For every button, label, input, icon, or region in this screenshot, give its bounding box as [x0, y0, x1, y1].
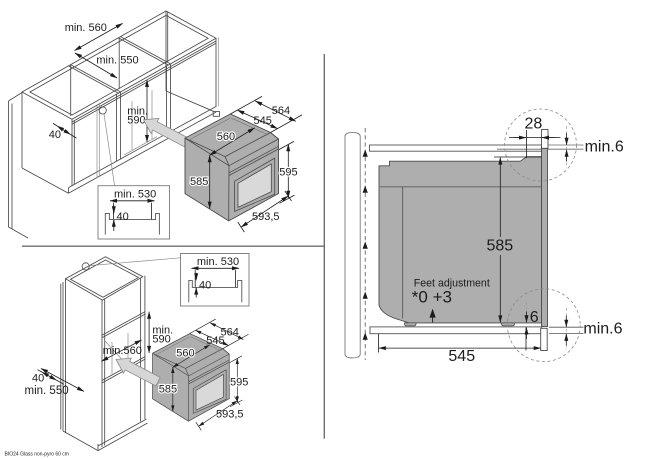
svg-text:min.6: min.6	[585, 138, 624, 155]
svg-text:560: 560	[217, 131, 235, 143]
svg-text:593,5: 593,5	[216, 408, 244, 420]
svg-text:min. 550: min. 550	[96, 54, 138, 66]
svg-text:*0 +3: *0 +3	[412, 287, 452, 306]
svg-text:585: 585	[487, 237, 514, 254]
svg-text:min. 530: min. 530	[197, 256, 239, 268]
svg-text:40: 40	[117, 211, 129, 223]
svg-text:min. 530: min. 530	[114, 189, 156, 201]
svg-text:40: 40	[199, 280, 211, 292]
svg-text:28: 28	[525, 116, 543, 133]
svg-text:585: 585	[190, 176, 208, 188]
svg-text:40: 40	[49, 129, 61, 141]
svg-text:560: 560	[176, 347, 194, 359]
svg-text:min. 550: min. 550	[25, 385, 69, 397]
svg-text:545: 545	[254, 115, 272, 127]
svg-text:564: 564	[221, 327, 239, 339]
svg-text:590: 590	[127, 115, 145, 127]
svg-text:min.560: min.560	[103, 345, 142, 357]
svg-text:585: 585	[159, 384, 177, 396]
svg-text:564: 564	[272, 105, 290, 117]
svg-text:40: 40	[32, 372, 44, 384]
svg-text:595: 595	[230, 377, 248, 389]
svg-text:590: 590	[152, 333, 170, 345]
svg-text:BIO24 Glass non-pyro 60 cm: BIO24 Glass non-pyro 60 cm	[5, 451, 69, 457]
svg-text:593,5: 593,5	[252, 211, 280, 223]
svg-text:6: 6	[530, 309, 539, 326]
svg-text:545: 545	[448, 348, 475, 365]
svg-text:min.6: min.6	[583, 321, 622, 338]
svg-text:min. 560: min. 560	[65, 22, 107, 34]
svg-text:595: 595	[279, 167, 297, 179]
